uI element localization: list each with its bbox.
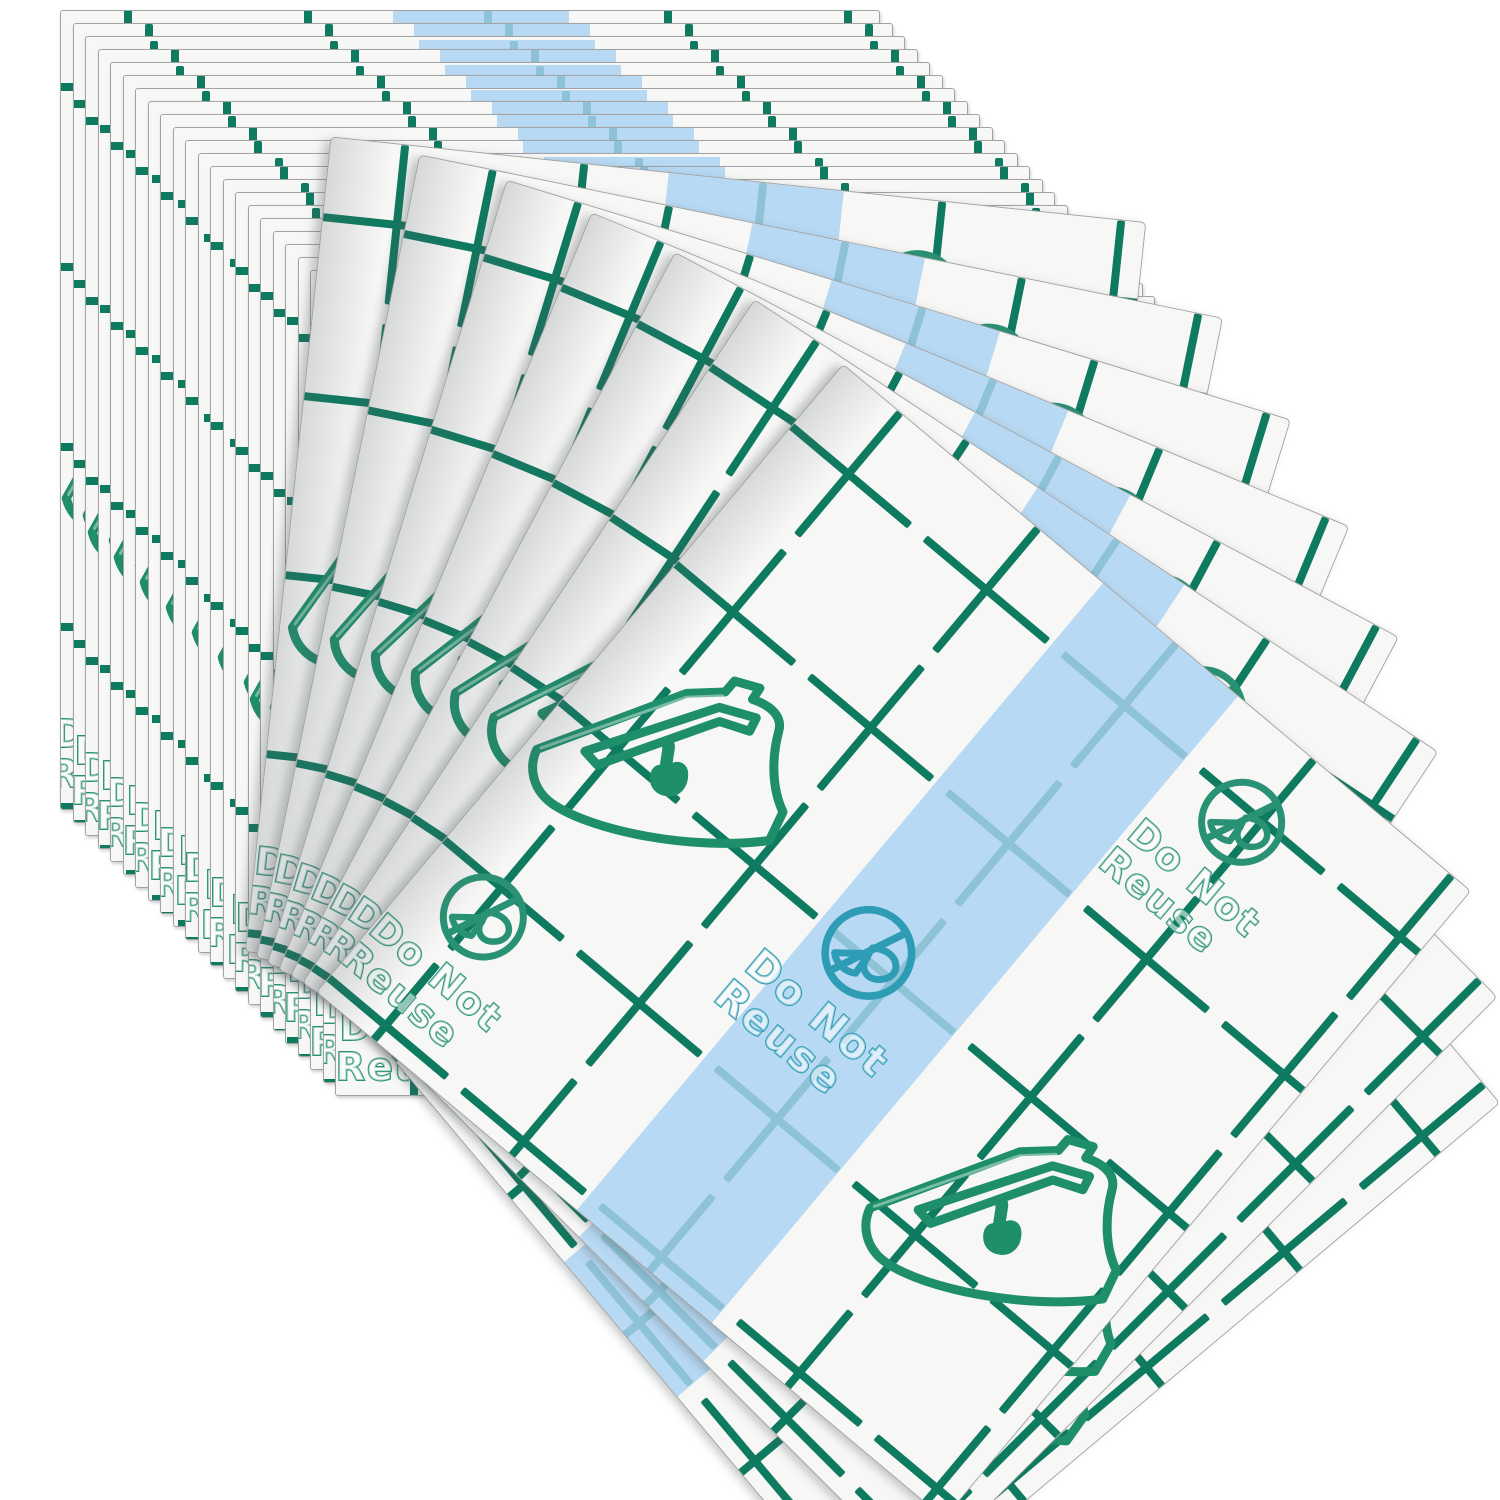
product-photo-transfer-tape-sheets xyxy=(0,0,1500,1500)
